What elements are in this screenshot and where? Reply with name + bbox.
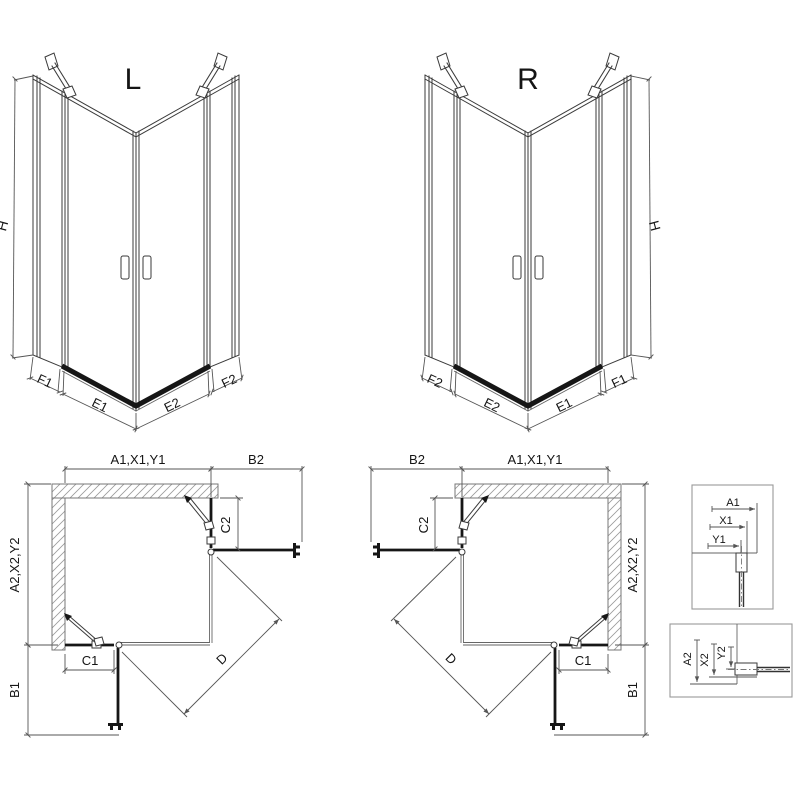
segment-label-e1-left: E1 <box>90 395 111 415</box>
segment-label-f2-right: F2 <box>425 371 445 391</box>
dim-label-width-top-left: A1,X1,Y1 <box>111 452 166 467</box>
plan-view-right-mirrored <box>371 466 649 735</box>
hinge-top <box>207 537 215 544</box>
wall-side-right-plan <box>608 498 621 650</box>
dim-label-b2-left: B2 <box>248 452 264 467</box>
variant-title-left: L <box>125 63 142 96</box>
plan-view-left-geometry <box>24 466 302 735</box>
variant-title-right: R <box>517 63 539 96</box>
dim-label-depth-right: A2,X2,Y2 <box>625 538 640 593</box>
dim-label-b1-left: B1 <box>7 682 22 698</box>
segment-label-e2-left: E2 <box>162 395 183 415</box>
dim-label-c1-left: C1 <box>82 653 99 668</box>
support-bar-top <box>184 495 214 530</box>
door-handle-left <box>121 256 129 279</box>
wall-top-right-plan <box>455 484 621 498</box>
door-handle-right <box>143 256 151 279</box>
detail-label-x1: X1 <box>719 515 732 527</box>
dim-label-b2-right: B2 <box>409 452 425 467</box>
height-label-left: H <box>0 219 11 233</box>
technical-drawing-canvas: L H F1 E1 E2 F2 R H F2 E2 E1 F1 <box>0 0 800 800</box>
detail-label-x2: X2 <box>699 653 711 666</box>
wall-profile-section-bottom <box>735 663 757 675</box>
segment-label-e1-right: E1 <box>554 395 575 415</box>
support-rod-left <box>45 53 76 98</box>
segment-label-f2-left: F2 <box>219 371 239 391</box>
detail-view-bottom: A2 X2 Y2 <box>670 624 792 697</box>
dim-label-depth-left: A2,X2,Y2 <box>7 538 22 593</box>
wall-side-left-plan <box>52 498 65 650</box>
segment-label-e2-right: E2 <box>482 395 503 415</box>
dim-label-b1-right: B1 <box>625 682 640 698</box>
support-bar-side <box>64 613 104 646</box>
detail-label-y2: Y2 <box>716 646 728 659</box>
support-rod-right <box>196 53 227 98</box>
wall-top-left-plan <box>52 484 218 498</box>
dim-label-c2-right: C2 <box>416 517 431 534</box>
dim-label-width-top-right: A1,X1,Y1 <box>508 452 563 467</box>
dim-label-c2-left: C2 <box>218 517 233 534</box>
dim-label-d-right: D <box>443 650 460 667</box>
dim-label-c1-right: C1 <box>575 653 592 668</box>
height-label-right: H <box>646 219 664 233</box>
detail-label-a1: A1 <box>726 497 739 509</box>
detail-label-a2: A2 <box>682 652 694 665</box>
dim-label-d-left: D <box>213 650 230 667</box>
detail-label-y1: Y1 <box>712 534 725 546</box>
detail-view-top: A1 X1 Y1 <box>692 485 773 609</box>
shower-enclosure-dimension-diagram: L H F1 E1 E2 F2 R H F2 E2 E1 F1 <box>0 0 800 800</box>
